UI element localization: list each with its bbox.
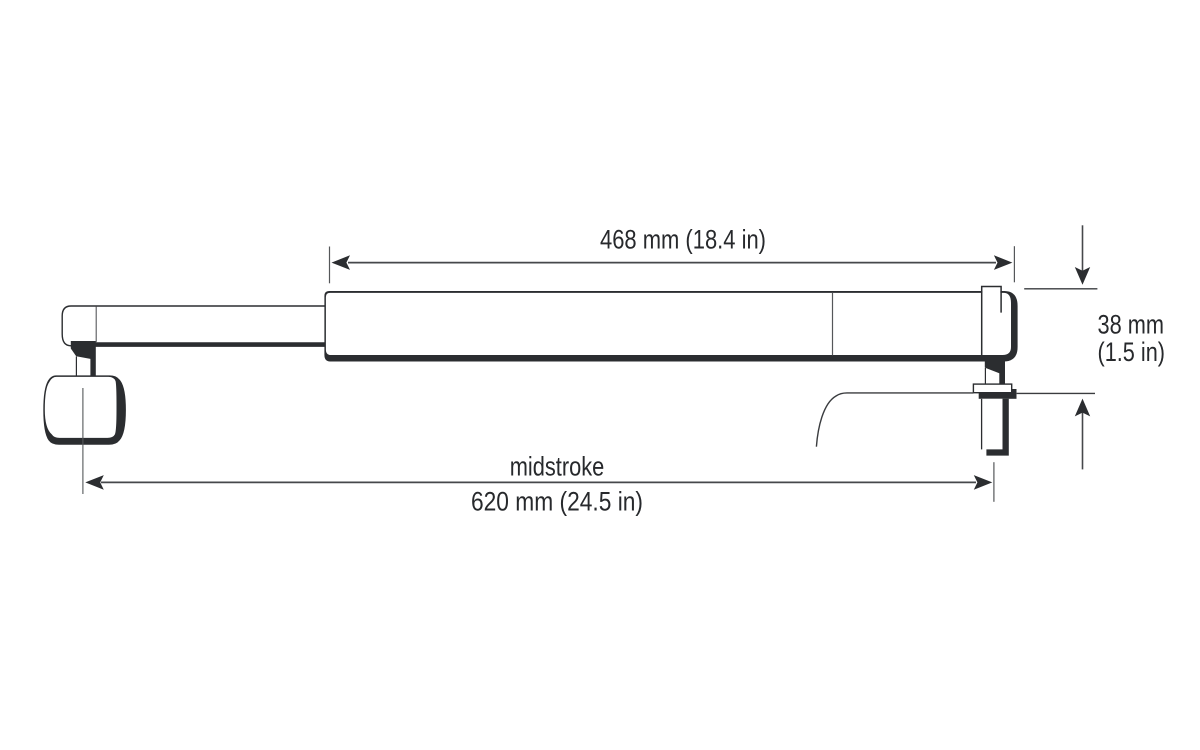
svg-text:468 mm (18.4 in): 468 mm (18.4 in) [600,225,766,255]
svg-text:38 mm: 38 mm [1098,309,1165,339]
svg-text:midstroke: midstroke [510,451,605,481]
svg-text:620 mm (24.5 in): 620 mm (24.5 in) [471,486,643,516]
svg-text:(1.5 in): (1.5 in) [1098,337,1166,367]
